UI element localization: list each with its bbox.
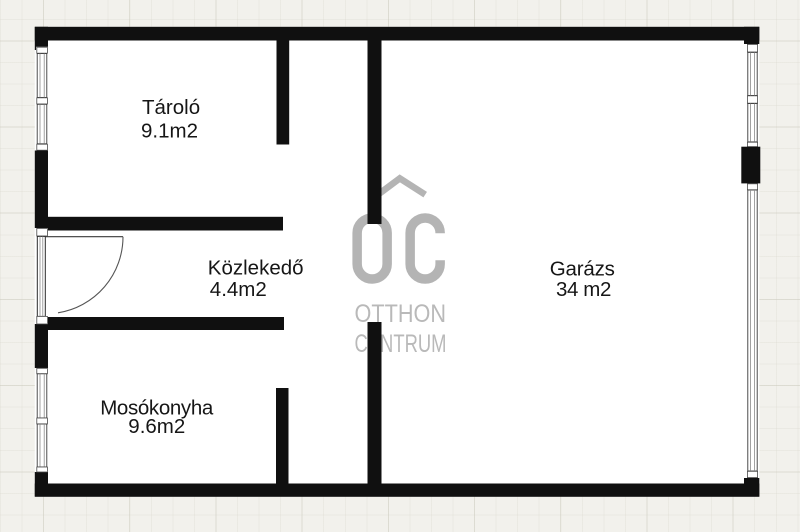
svg-text:4.4m2: 4.4m2	[210, 278, 267, 301]
svg-text:Közlekedő: Közlekedő	[208, 256, 304, 279]
svg-text:9.1m2: 9.1m2	[141, 120, 198, 143]
svg-text:9.6m2: 9.6m2	[128, 415, 185, 438]
svg-text:34 m2: 34 m2	[556, 278, 611, 301]
svg-text:Tároló: Tároló	[142, 96, 200, 119]
